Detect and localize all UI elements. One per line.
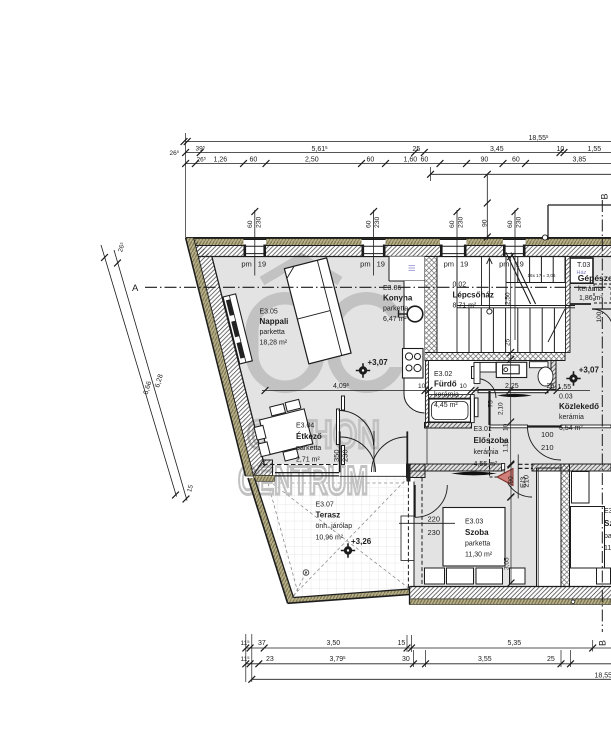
svg-text:19: 19 (516, 260, 524, 269)
svg-text:60: 60 (512, 156, 520, 163)
svg-text:Konyha: Konyha (383, 293, 413, 302)
svg-text:2,50: 2,50 (505, 292, 512, 305)
svg-text:E3.07: E3.07 (316, 501, 334, 508)
svg-text:parketta: parketta (383, 305, 408, 312)
svg-text:18,55: 18,55 (595, 673, 611, 680)
svg-text:60: 60 (366, 220, 373, 228)
svg-text:230: 230 (516, 216, 523, 228)
svg-text:230: 230 (255, 216, 262, 228)
svg-text:0.03: 0.03 (559, 393, 573, 400)
svg-text:60: 60 (507, 220, 514, 228)
svg-text:1,10: 1,10 (502, 439, 509, 452)
svg-text:25: 25 (505, 338, 512, 346)
svg-text:4,56 m²: 4,56 m² (474, 461, 498, 468)
svg-text:3,50: 3,50 (327, 640, 341, 647)
svg-text:30: 30 (402, 656, 410, 663)
svg-text:230: 230 (458, 216, 465, 228)
svg-text:2,71 m²: 2,71 m² (296, 456, 320, 463)
svg-text:230: 230 (341, 449, 350, 462)
svg-text:1,86 m²: 1,86 m² (579, 295, 603, 302)
svg-text:B: B (600, 193, 610, 199)
svg-text:10: 10 (460, 383, 468, 390)
svg-text:kerámia: kerámia (434, 391, 459, 398)
svg-text:18,28 m²: 18,28 m² (260, 340, 288, 347)
svg-text:par: par (604, 533, 611, 540)
svg-text:10: 10 (418, 383, 426, 390)
svg-text:60: 60 (250, 156, 258, 163)
svg-text:+3,07: +3,07 (579, 366, 600, 375)
svg-text:E3.06: E3.06 (383, 285, 401, 292)
svg-text:60: 60 (421, 156, 429, 163)
svg-text:11,30 m²: 11,30 m² (465, 552, 493, 559)
svg-text:+3,07: +3,07 (368, 358, 389, 367)
svg-text:E3.05: E3.05 (260, 309, 278, 316)
svg-text:60: 60 (247, 220, 254, 228)
svg-text:19: 19 (377, 260, 385, 269)
svg-text:3,85: 3,85 (573, 156, 587, 163)
svg-text:90: 90 (481, 156, 489, 163)
svg-text:8,71 m²: 8,71 m² (453, 302, 477, 309)
svg-text:1,55: 1,55 (588, 146, 602, 153)
svg-text:5,35: 5,35 (508, 640, 522, 647)
svg-text:E3.: E3. (604, 508, 611, 515)
svg-text:3,55: 3,55 (478, 656, 492, 663)
svg-text:1,60: 1,60 (404, 156, 418, 163)
svg-text:19: 19 (258, 260, 266, 269)
svg-text:parketta: parketta (260, 329, 285, 336)
svg-text:kerámia: kerámia (578, 286, 603, 293)
svg-text:Szoba: Szoba (465, 528, 489, 537)
svg-text:Szo: Szo (604, 519, 611, 528)
svg-text:210: 210 (522, 475, 531, 488)
svg-text:1,55: 1,55 (558, 384, 572, 391)
svg-text:0.02: 0.02 (453, 282, 467, 289)
svg-text:3,05: 3,05 (504, 557, 511, 570)
svg-text:37: 37 (258, 640, 266, 647)
svg-text:15: 15 (398, 640, 406, 647)
svg-text:23: 23 (266, 656, 274, 663)
svg-text:pm: pm (444, 260, 454, 269)
svg-text:2,50: 2,50 (305, 156, 319, 163)
svg-text:Étkező: Étkező (296, 432, 322, 441)
svg-text:T.03: T.03 (577, 262, 590, 269)
svg-text:60: 60 (449, 220, 456, 228)
svg-text:Fürdő: Fürdő (434, 380, 457, 389)
svg-text:B: B (598, 640, 608, 646)
svg-text:1,26: 1,26 (214, 156, 228, 163)
svg-text:E3.02: E3.02 (434, 371, 452, 378)
svg-text:10,96 m²: 10,96 m² (316, 535, 344, 542)
svg-text:230: 230 (374, 216, 381, 228)
svg-text:önh. járólap: önh. járólap (316, 523, 353, 530)
svg-text:A: A (132, 283, 139, 294)
svg-text:3,45: 3,45 (490, 146, 504, 153)
svg-text:4,45 m²: 4,45 m² (434, 402, 458, 409)
svg-text:Terasz: Terasz (316, 511, 341, 520)
svg-text:E3.03: E3.03 (465, 519, 483, 526)
svg-text:parketta: parketta (296, 445, 321, 452)
svg-text:kerámia: kerámia (559, 414, 584, 421)
svg-text:6,54 m²: 6,54 m² (559, 425, 583, 432)
svg-text:25: 25 (547, 383, 555, 390)
svg-text:2,10: 2,10 (498, 402, 505, 415)
svg-text:Gépészet: Gépészet (578, 273, 611, 283)
svg-text:90: 90 (482, 219, 489, 227)
svg-text:pm: pm (241, 260, 251, 269)
svg-text:11,: 11, (604, 545, 611, 552)
svg-text:75: 75 (488, 400, 495, 408)
svg-text:10: 10 (557, 146, 565, 153)
svg-text:210: 210 (541, 443, 554, 452)
svg-text:25: 25 (413, 146, 421, 153)
svg-text:16x 17 = 3,06: 16x 17 = 3,06 (528, 273, 556, 278)
svg-text:Lépcsőház: Lépcsőház (453, 290, 494, 299)
svg-text:100: 100 (541, 430, 554, 439)
svg-text:25: 25 (547, 656, 555, 663)
svg-text:220: 220 (428, 515, 441, 524)
svg-text:pm: pm (360, 260, 370, 269)
svg-text:230: 230 (428, 528, 441, 537)
svg-text:+3,26: +3,26 (351, 537, 372, 546)
svg-text:kerámia: kerámia (474, 449, 499, 456)
svg-text:19: 19 (460, 260, 468, 269)
svg-text:E3.01: E3.01 (474, 426, 492, 433)
svg-text:2,25: 2,25 (505, 383, 519, 390)
svg-text:18,555: 18,555 (529, 134, 550, 142)
svg-text:Közlekedő: Közlekedő (559, 402, 599, 411)
svg-text:60: 60 (367, 156, 375, 163)
svg-text:E3.04: E3.04 (296, 422, 314, 429)
svg-text:Nappali: Nappali (260, 317, 289, 326)
svg-text:parketta: parketta (465, 540, 490, 547)
svg-text:6,47 m²: 6,47 m² (383, 316, 407, 323)
svg-text:pm: pm (499, 260, 509, 269)
